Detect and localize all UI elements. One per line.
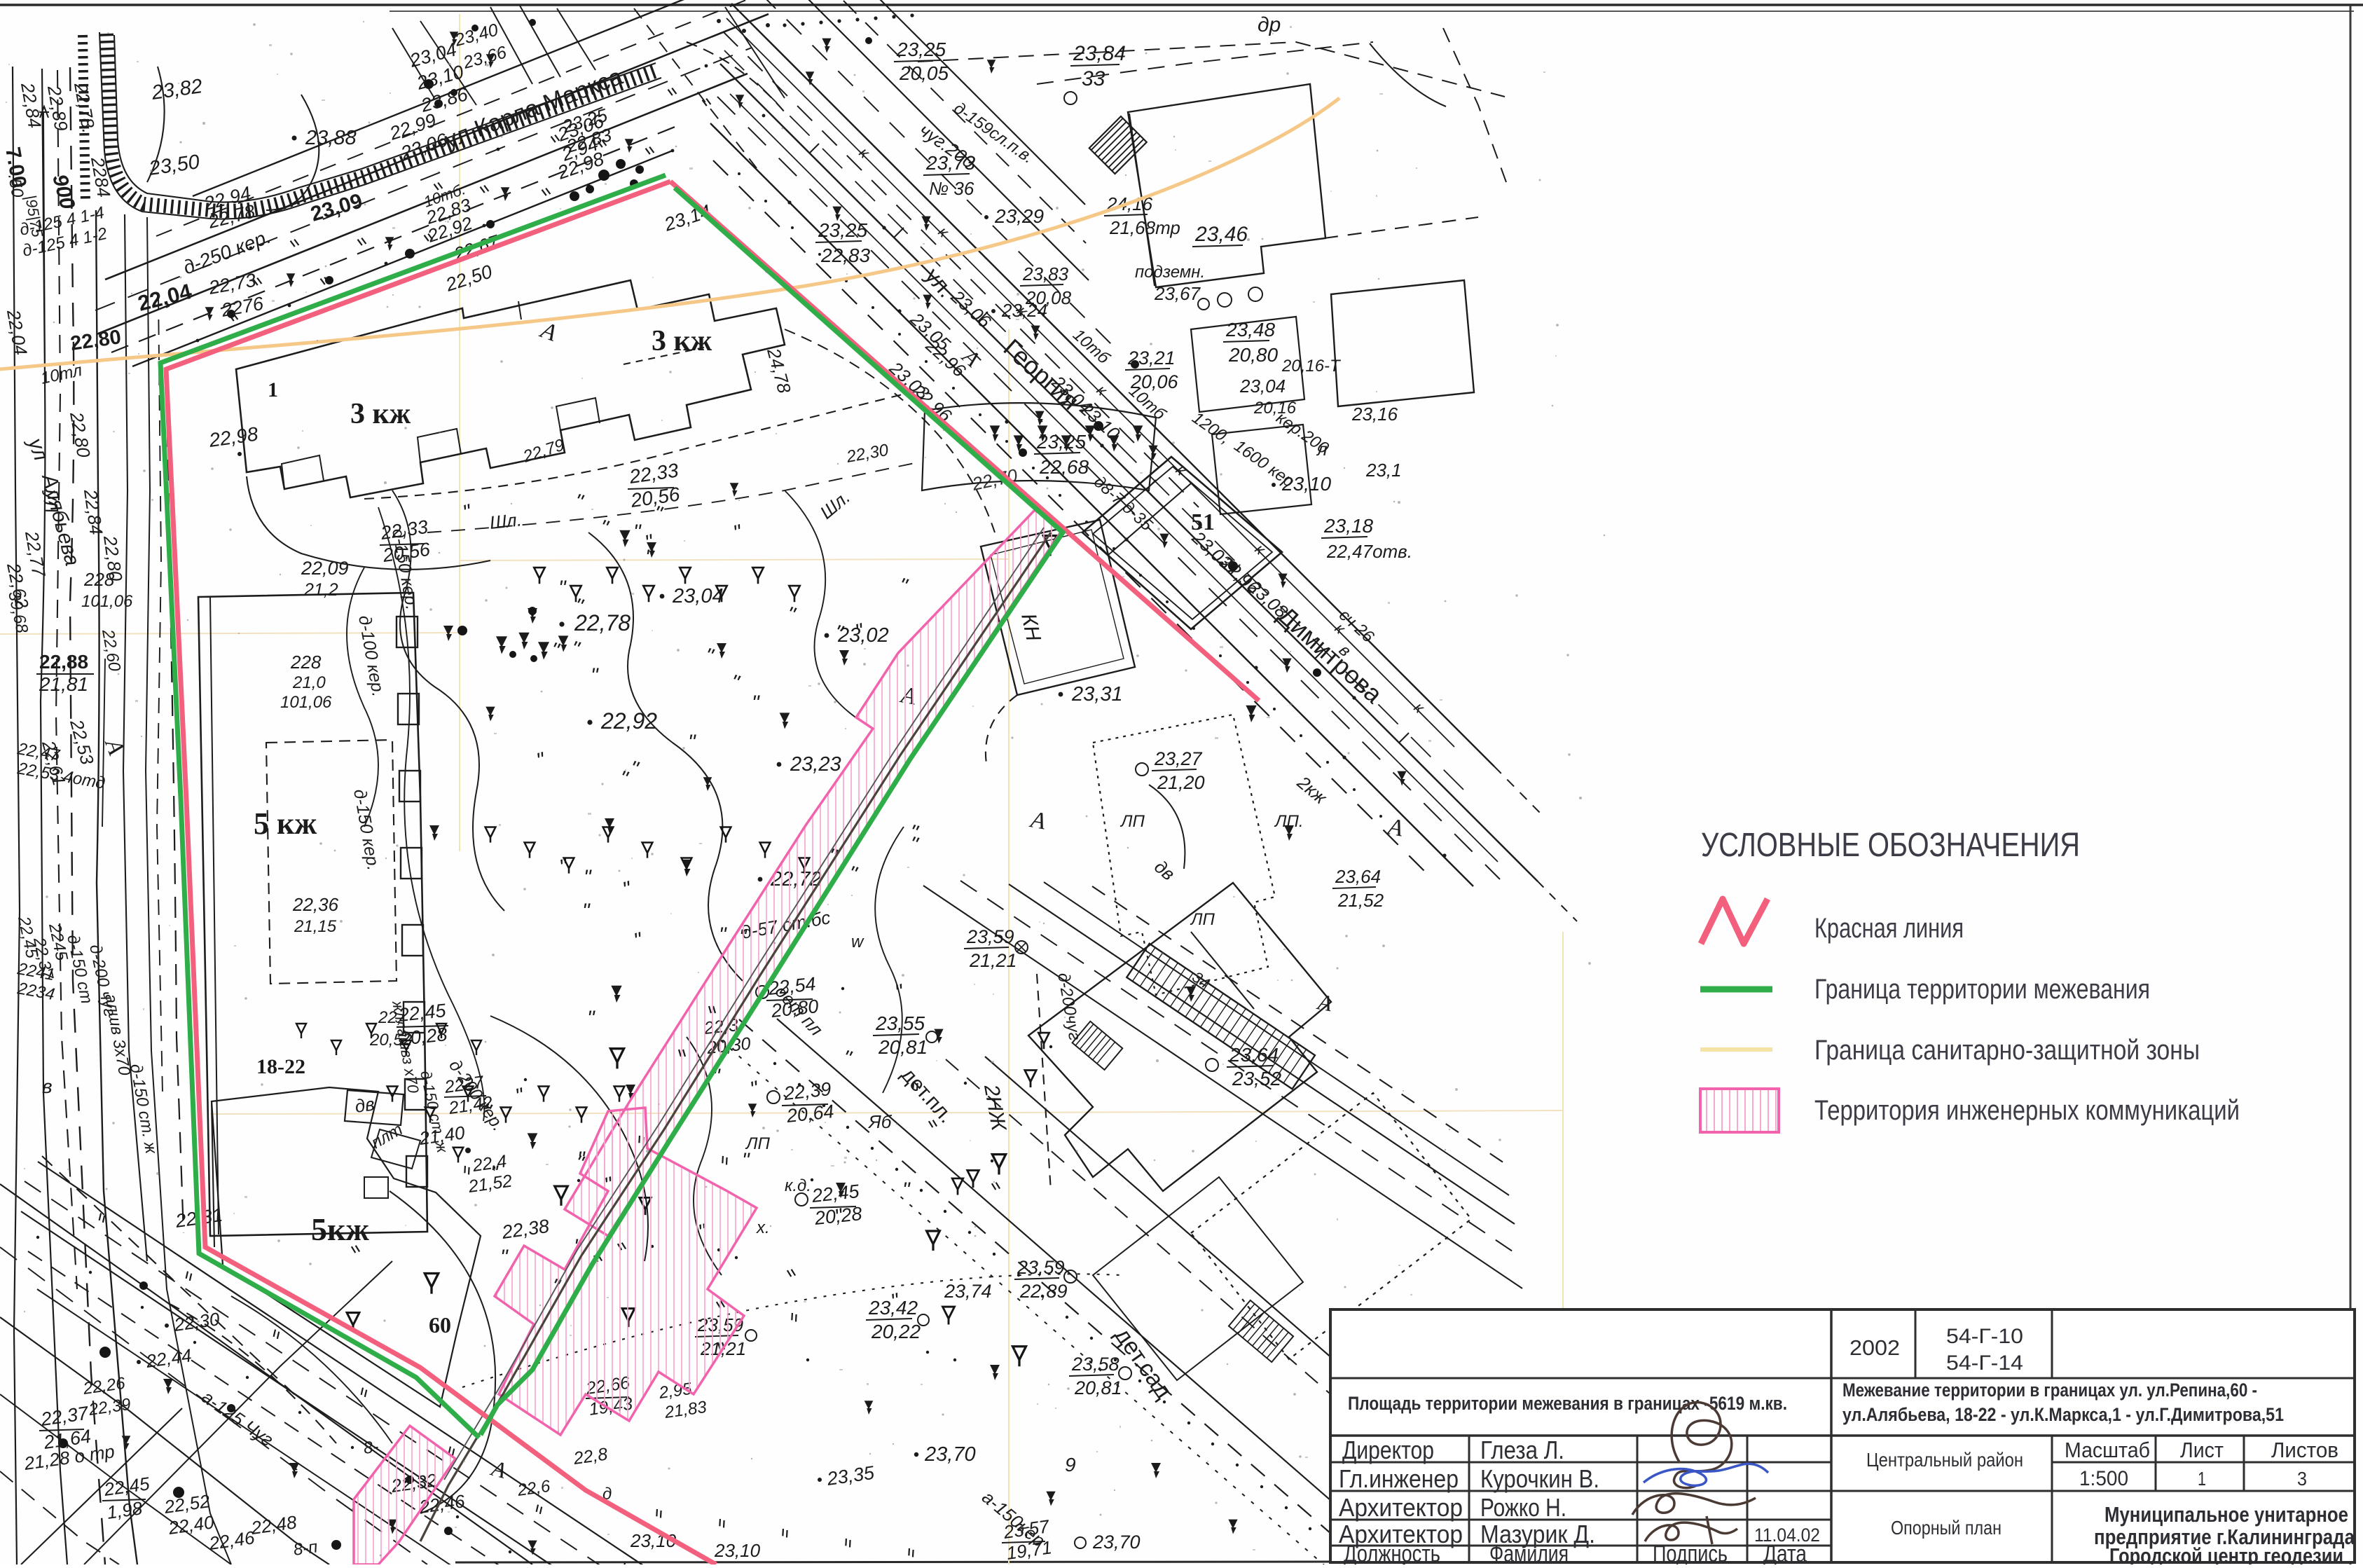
svg-text:23,25: 23,25 xyxy=(896,39,946,60)
svg-text:22,78: 22,78 xyxy=(574,610,631,635)
svg-text:Красная линия: Красная линия xyxy=(1814,913,1964,944)
svg-text:Архитектор: Архитектор xyxy=(1339,1493,1463,1522)
svg-text:": " xyxy=(582,900,591,923)
svg-text:21,2: 21,2 xyxy=(303,580,338,600)
svg-text:20,16: 20,16 xyxy=(1253,399,1297,418)
svg-text:": " xyxy=(633,521,642,544)
svg-text:Граница территории межевания: Граница территории межевания xyxy=(1814,974,2150,1005)
svg-text:20,05: 20,05 xyxy=(899,62,949,84)
svg-text:20,81: 20,81 xyxy=(1074,1377,1122,1398)
svg-text:УСЛОВНЫЕ ОБОЗНАЧЕНИЯ: УСЛОВНЫЕ ОБОЗНАЧЕНИЯ xyxy=(1701,827,2080,864)
svg-text:23,73: 23,73 xyxy=(925,152,975,174)
svg-text:к.д.: к.д. xyxy=(785,1176,811,1195)
svg-text:23,59: 23,59 xyxy=(966,926,1014,947)
svg-text:Межевание территории в граница: Межевание территории в границах ул. ул.Р… xyxy=(1842,1380,2257,1401)
svg-text:Подпись: Подпись xyxy=(1653,1541,1728,1564)
svg-text:1: 1 xyxy=(2198,1468,2206,1490)
svg-text:2002: 2002 xyxy=(1849,1335,1900,1360)
svg-text:Территория инженерных коммуник: Территория инженерных коммуникаций xyxy=(1814,1095,2240,1126)
svg-text:228: 228 xyxy=(83,569,115,590)
svg-text:22,88: 22,88 xyxy=(39,651,88,673)
svg-text:": " xyxy=(558,577,567,600)
svg-text:подземн.: подземн. xyxy=(1135,263,1205,282)
svg-text:л: л xyxy=(1316,439,1328,460)
svg-text:Рожко Н.: Рожко Н. xyxy=(1480,1493,1566,1522)
svg-text:23,67: 23,67 xyxy=(1154,283,1201,304)
svg-text:w: w xyxy=(851,933,864,951)
svg-text:22,09: 22,09 xyxy=(301,558,349,579)
svg-text:101,06: 101,06 xyxy=(280,693,332,712)
svg-text:23,24: 23,24 xyxy=(1001,300,1047,321)
svg-text:23,31: 23,31 xyxy=(1071,683,1123,706)
svg-text:23,04: 23,04 xyxy=(1239,376,1286,397)
svg-text:№ 36: № 36 xyxy=(929,178,974,199)
svg-text:1:500: 1:500 xyxy=(2079,1467,2128,1490)
svg-text:УЛ: УЛ xyxy=(38,487,63,515)
svg-text:8-п: 8-п xyxy=(292,1537,319,1560)
svg-text:21,0: 21,0 xyxy=(292,673,326,692)
svg-text:23,59: 23,59 xyxy=(1017,1257,1065,1278)
svg-text:3 кж: 3 кж xyxy=(350,398,411,430)
svg-text:9: 9 xyxy=(1065,1454,1076,1476)
svg-text:23,42: 23,42 xyxy=(868,1297,918,1319)
svg-text:Фамилия: Фамилия xyxy=(1489,1541,1569,1564)
svg-text:ЛП: ЛП xyxy=(1120,812,1145,831)
svg-text:23,70: 23,70 xyxy=(1092,1532,1141,1553)
svg-text:23,46: 23,46 xyxy=(1194,223,1248,246)
svg-text:21,52: 21,52 xyxy=(1337,890,1384,911)
svg-text:Шл.: Шл. xyxy=(488,509,523,533)
svg-text:23,1: 23,1 xyxy=(1365,460,1402,481)
svg-text:21,20: 21,20 xyxy=(1157,772,1205,793)
svg-text:20,06: 20,06 xyxy=(1130,371,1179,392)
svg-text:23,52: 23,52 xyxy=(1232,1068,1281,1089)
svg-text:20,22: 20,22 xyxy=(871,1321,921,1342)
svg-text:": " xyxy=(752,692,760,715)
svg-text:": " xyxy=(500,1246,509,1269)
svg-text:23,23: 23,23 xyxy=(790,753,841,776)
svg-text:20,81: 20,81 xyxy=(878,1036,928,1058)
svg-text:54-Г-14: 54-Г-14 xyxy=(1946,1352,2023,1375)
svg-text:Листов: Листов xyxy=(2271,1438,2338,1462)
svg-text:22,36: 22,36 xyxy=(292,894,339,915)
svg-text:11.04.02: 11.04.02 xyxy=(1754,1525,1820,1546)
svg-text:22,83: 22,83 xyxy=(820,245,870,266)
svg-text:х.: х. xyxy=(756,1218,770,1237)
svg-text:Лист: Лист xyxy=(2180,1438,2224,1462)
svg-text:ул.Алябьева, 18-22 - ул.К.Марк: ул.Алябьева, 18-22 - ул.К.Маркса,1 - ул.… xyxy=(1842,1404,2284,1425)
svg-text:23,58: 23,58 xyxy=(1071,1354,1120,1375)
svg-text:Площадь территории межевания в: Площадь территории межевания в границах … xyxy=(1348,1393,1787,1414)
svg-text:3 кж: 3 кж xyxy=(652,325,712,357)
svg-text:др: др xyxy=(1258,13,1281,36)
svg-text:Должность: Должность xyxy=(1344,1541,1440,1564)
svg-text:23,04: 23,04 xyxy=(672,585,724,607)
svg-text:в: в xyxy=(42,1075,53,1097)
svg-text:23,83: 23,83 xyxy=(1022,263,1069,284)
svg-text:21,68тр: 21,68тр xyxy=(1109,217,1180,238)
svg-text:22,89: 22,89 xyxy=(1019,1281,1068,1302)
svg-text:": " xyxy=(490,1162,499,1185)
svg-text:23,29: 23,29 xyxy=(994,205,1044,227)
svg-text:101,06: 101,06 xyxy=(81,592,133,611)
svg-text:Гл.инженер: Гл.инженер xyxy=(1339,1464,1459,1493)
svg-text:": " xyxy=(902,1178,911,1202)
svg-text:21,15: 21,15 xyxy=(294,917,337,936)
svg-text:Опорный план: Опорный план xyxy=(1891,1517,2002,1539)
svg-text:22,92: 22,92 xyxy=(600,708,657,734)
svg-text:23,27: 23,27 xyxy=(1154,748,1203,769)
svg-text:22,68: 22,68 xyxy=(1039,456,1089,478)
svg-text:20,16-Т: 20,16-Т xyxy=(1281,357,1342,376)
svg-text:Муниципальное унитарное: Муниципальное унитарное xyxy=(2104,1502,2348,1527)
svg-text:1: 1 xyxy=(268,378,278,401)
svg-text:Курочкин В.: Курочкин В. xyxy=(1480,1464,1599,1493)
svg-text:23,70: 23,70 xyxy=(924,1443,976,1466)
svg-text:228: 228 xyxy=(290,652,322,673)
svg-text:8-: 8- xyxy=(362,1437,380,1458)
svg-text:20,80: 20,80 xyxy=(1228,344,1278,366)
svg-text:": " xyxy=(584,866,592,889)
svg-text:23,64: 23,64 xyxy=(1229,1044,1279,1066)
svg-text:23,10: 23,10 xyxy=(714,1540,761,1561)
svg-text:5 кж: 5 кж xyxy=(254,806,317,841)
svg-text:22,47отв.: 22,47отв. xyxy=(1326,541,1412,562)
svg-text:23,16: 23,16 xyxy=(1351,404,1398,425)
svg-text:Яб: Яб xyxy=(867,1111,893,1132)
svg-text:33: 33 xyxy=(1082,67,1105,90)
svg-text:": " xyxy=(591,664,599,687)
svg-text:": " xyxy=(688,731,696,754)
svg-text:Глеза Л.: Глеза Л. xyxy=(1480,1436,1564,1464)
svg-text:23,48: 23,48 xyxy=(1225,319,1275,341)
svg-text:23,64: 23,64 xyxy=(1335,866,1381,887)
svg-text:": " xyxy=(587,1007,595,1030)
svg-text:21,21: 21,21 xyxy=(969,950,1017,971)
svg-text:23,18: 23,18 xyxy=(1323,515,1373,537)
svg-text:18-22: 18-22 xyxy=(256,1055,305,1078)
svg-text:23,55: 23,55 xyxy=(875,1012,925,1034)
svg-text:23,74: 23,74 xyxy=(944,1281,992,1302)
svg-text:23,25: 23,25 xyxy=(818,219,867,241)
svg-text:Масштаб: Масштаб xyxy=(2065,1438,2150,1462)
svg-text:23,25: 23,25 xyxy=(1036,431,1086,453)
svg-text:23,21: 23,21 xyxy=(1127,348,1176,369)
svg-text:Центральный район: Центральный район xyxy=(1866,1449,2023,1471)
svg-text:": " xyxy=(719,923,727,947)
svg-text:ЛП: ЛП xyxy=(745,1134,770,1153)
svg-text:Директор: Директор xyxy=(1342,1436,1434,1464)
svg-text:60: 60 xyxy=(429,1312,451,1337)
svg-text:23,88: 23,88 xyxy=(305,127,357,149)
svg-text:21,81: 21,81 xyxy=(39,673,88,695)
svg-text:54-Г-10: 54-Г-10 xyxy=(1946,1325,2023,1348)
svg-text:5кж: 5кж xyxy=(311,1211,370,1247)
svg-text:3: 3 xyxy=(2297,1468,2307,1490)
svg-text:Городской центр геодезии: Городской центр геодезии xyxy=(2109,1543,2343,1564)
svg-text:Граница санитарно-защитной зон: Граница санитарно-защитной зоны xyxy=(1814,1035,2200,1066)
